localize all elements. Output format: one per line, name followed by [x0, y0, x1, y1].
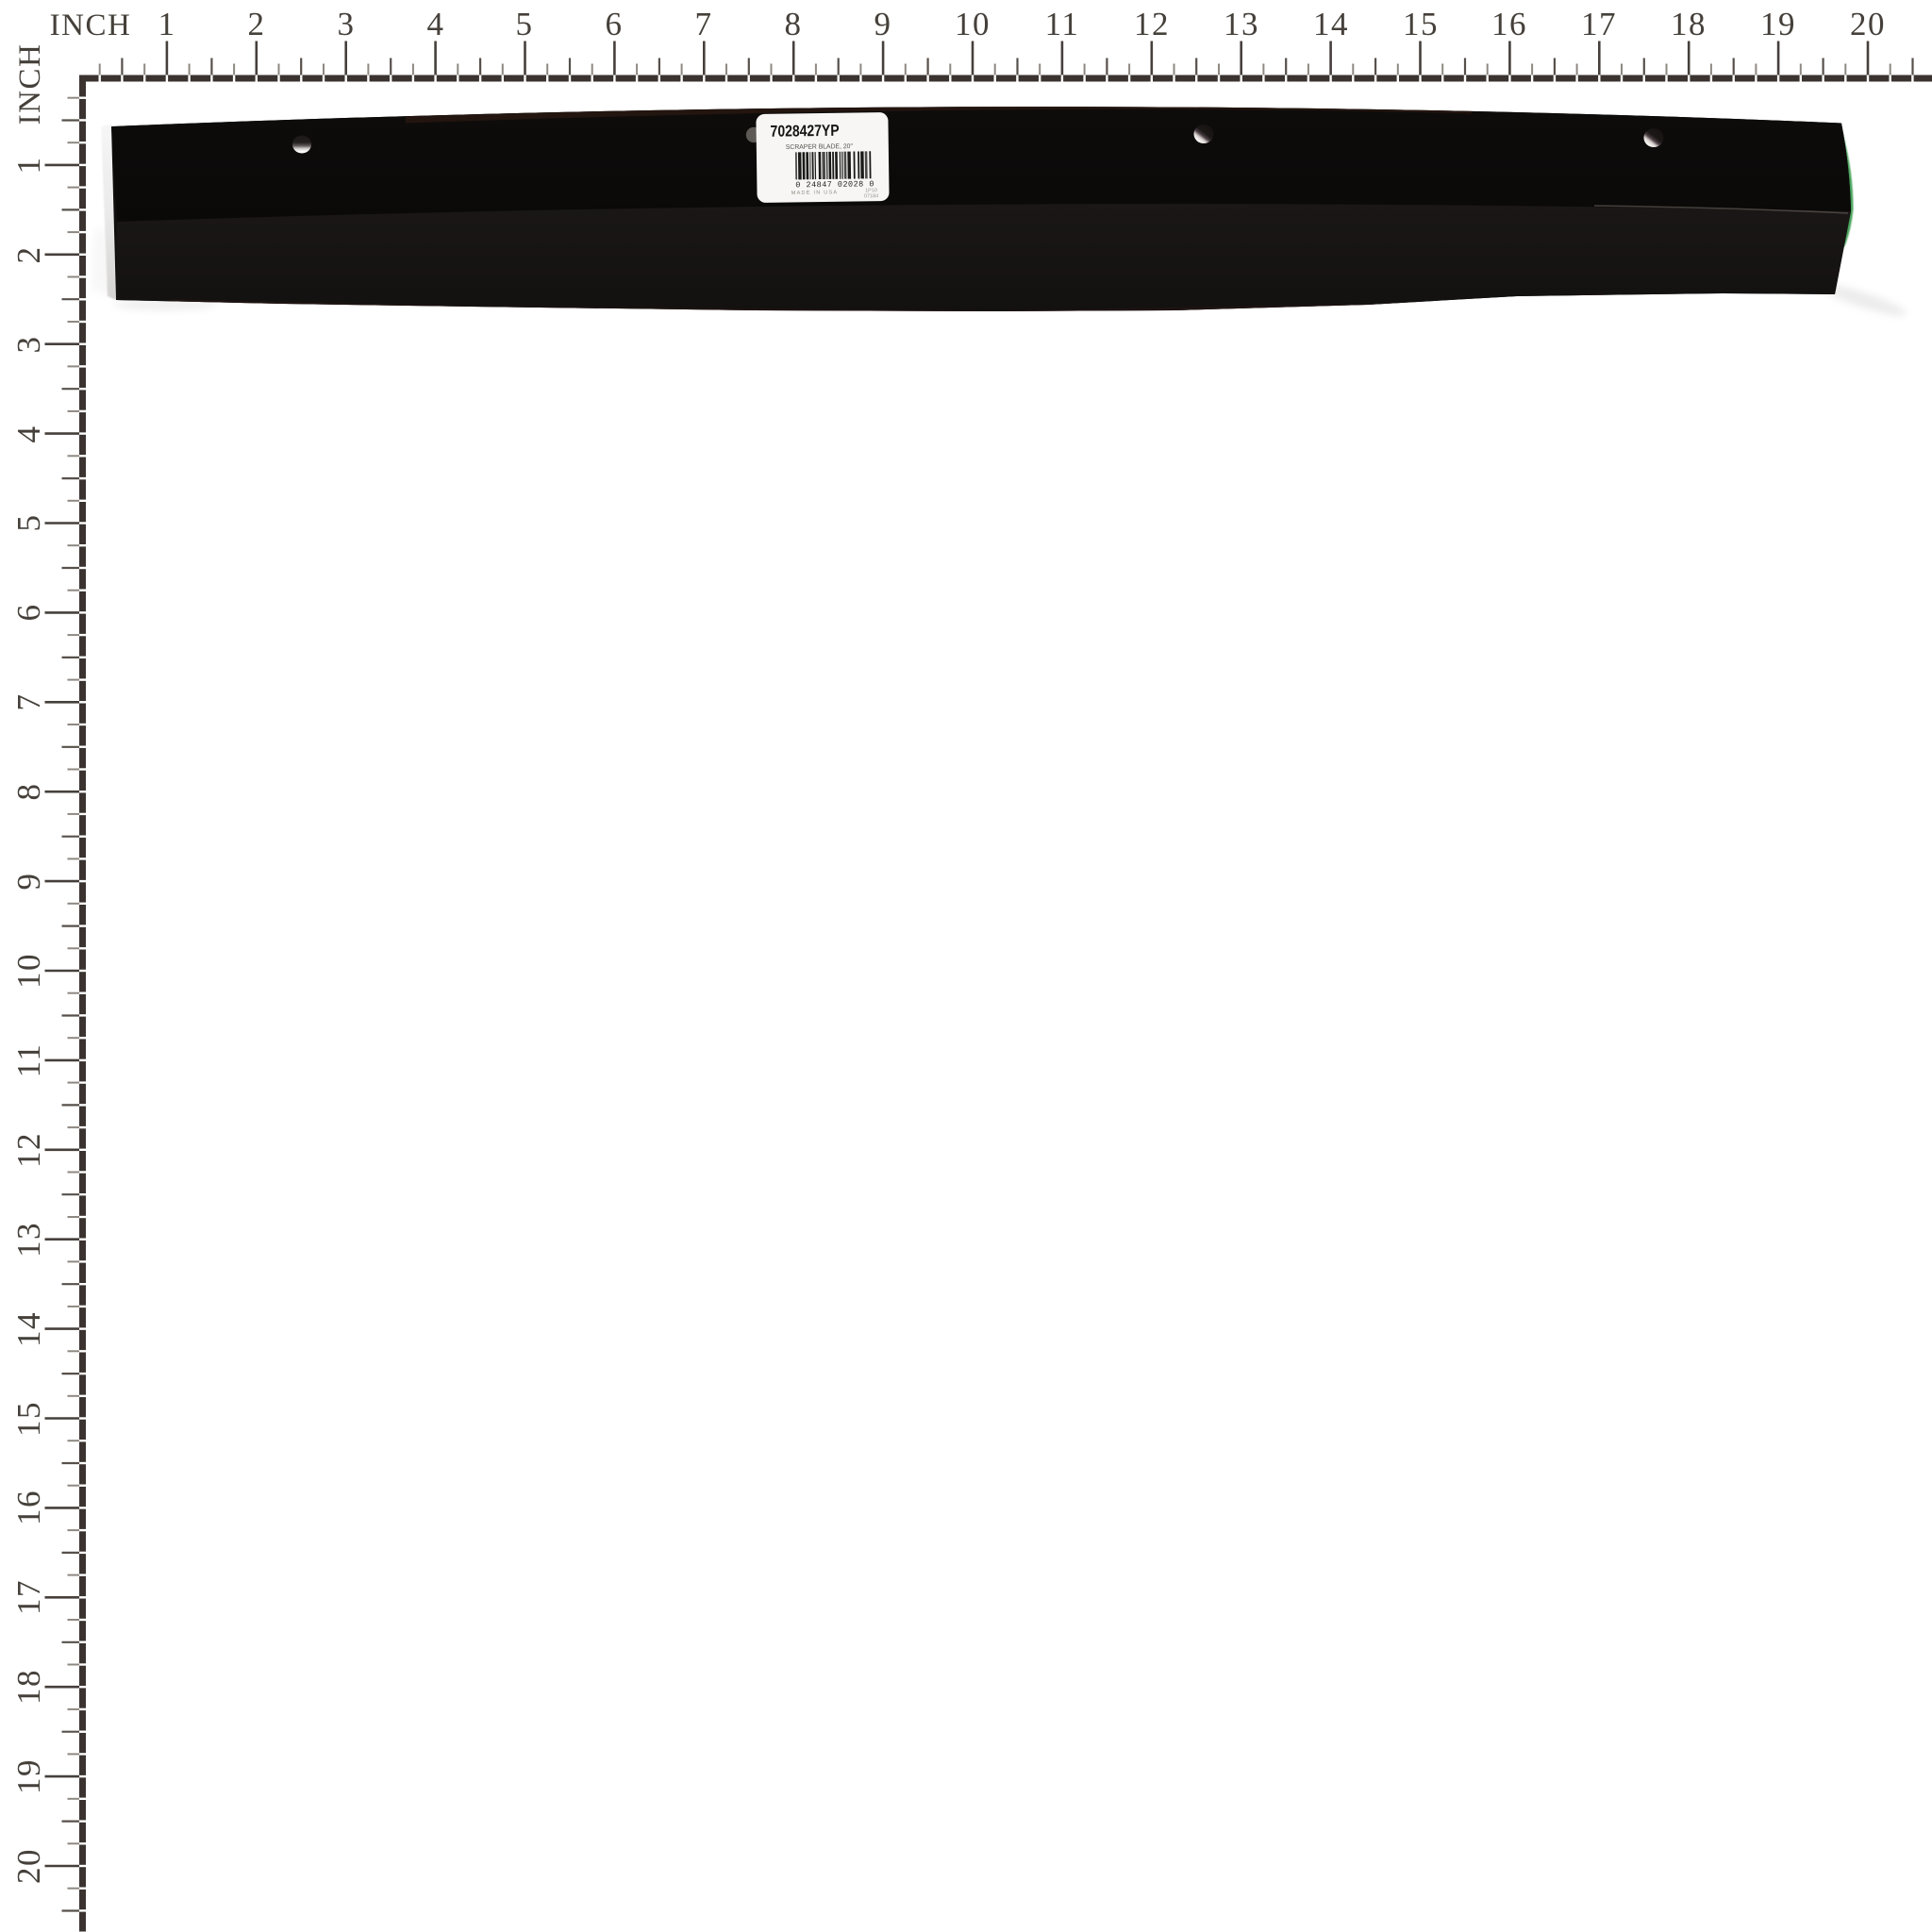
svg-text:8: 8: [785, 6, 803, 42]
svg-text:6: 6: [10, 604, 47, 622]
svg-text:16: 16: [1491, 6, 1527, 42]
svg-text:16: 16: [10, 1490, 47, 1525]
svg-text:3: 3: [338, 6, 356, 42]
svg-text:INCH: INCH: [50, 8, 132, 42]
svg-text:4: 4: [10, 425, 47, 443]
svg-text:20: 20: [1850, 6, 1886, 42]
svg-text:17: 17: [1581, 6, 1617, 42]
svg-text:13: 13: [10, 1222, 47, 1257]
svg-text:5: 5: [516, 6, 534, 42]
svg-text:MADE IN USA: MADE IN USA: [791, 190, 839, 196]
svg-text:4: 4: [427, 6, 445, 42]
svg-text:5: 5: [10, 514, 47, 532]
svg-text:18: 18: [1671, 6, 1707, 42]
svg-text:3: 3: [10, 336, 47, 354]
svg-text:15: 15: [1403, 6, 1439, 42]
svg-text:12: 12: [10, 1132, 47, 1168]
svg-text:2: 2: [248, 6, 266, 42]
svg-text:17: 17: [10, 1579, 47, 1615]
svg-text:11: 11: [10, 1043, 47, 1078]
svg-text:10: 10: [955, 6, 991, 42]
svg-text:1: 1: [158, 6, 176, 42]
svg-text:0 24847 02028 0: 0 24847 02028 0: [795, 179, 874, 190]
svg-text:19: 19: [1760, 6, 1796, 42]
svg-text:07184: 07184: [864, 193, 878, 199]
svg-text:20: 20: [10, 1848, 47, 1884]
svg-text:12: 12: [1134, 6, 1170, 42]
svg-text:10: 10: [10, 953, 47, 989]
svg-text:18: 18: [10, 1669, 47, 1705]
svg-text:19: 19: [10, 1758, 47, 1794]
svg-text:14: 14: [10, 1311, 47, 1347]
svg-text:7: 7: [695, 6, 713, 42]
svg-text:SCRAPER BLADE, 20″: SCRAPER BLADE, 20″: [786, 143, 854, 151]
svg-text:9: 9: [10, 873, 47, 891]
svg-text:6: 6: [606, 6, 624, 42]
svg-text:7: 7: [10, 693, 47, 711]
svg-text:14: 14: [1313, 6, 1349, 42]
svg-text:INCH: INCH: [13, 43, 47, 125]
svg-text:1: 1: [10, 157, 47, 175]
svg-text:13: 13: [1224, 6, 1259, 42]
svg-text:8: 8: [10, 783, 47, 801]
svg-text:9: 9: [874, 6, 892, 42]
svg-text:2: 2: [10, 246, 47, 264]
svg-text:7028427YP: 7028427YP: [770, 122, 839, 141]
svg-text:15: 15: [10, 1401, 47, 1437]
svg-text:11: 11: [1045, 6, 1080, 42]
